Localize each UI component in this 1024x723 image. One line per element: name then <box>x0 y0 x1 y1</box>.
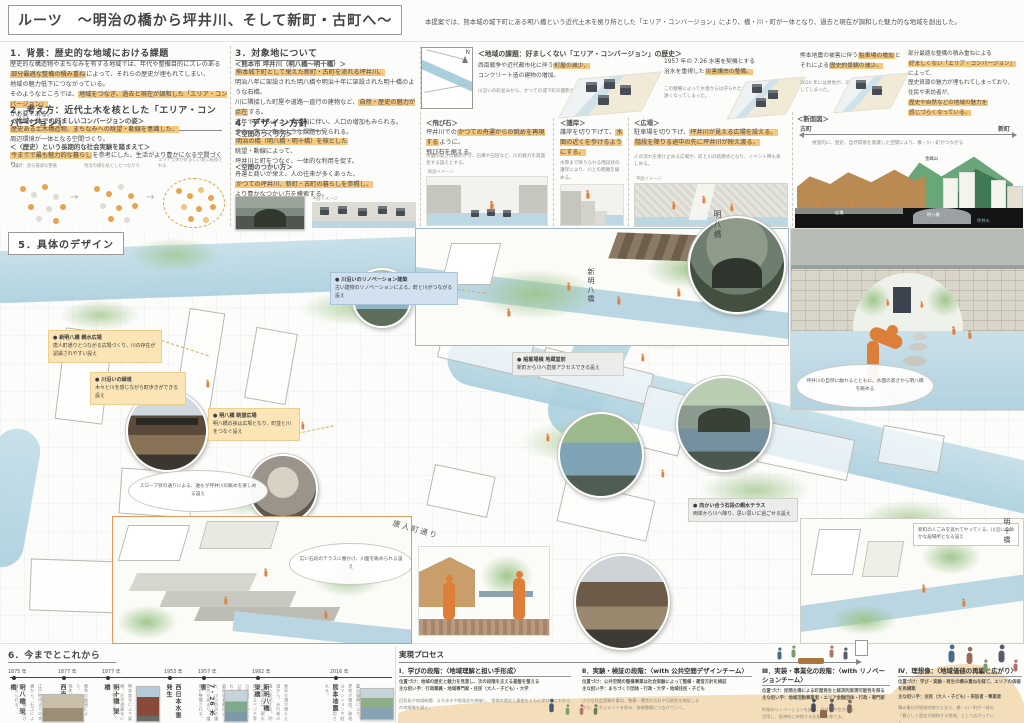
callout-renovation-architecture: ● 川沿いのリノベーション建築 古い建物のリノベーションによる、町と川がつながる… <box>330 272 458 305</box>
process-heading: 実現プロセス <box>399 649 444 660</box>
tobiishi-section-diagram <box>426 176 548 226</box>
person-silhouette <box>850 200 853 207</box>
photo-river-person <box>558 412 644 498</box>
bridge-arch-shape <box>698 408 750 432</box>
road-line <box>424 84 468 93</box>
stage-position: 位置づけ：地域の歴史と魅力を見直し、次の段階を支える基盤を整える <box>399 679 571 686</box>
gogan-section-diagram <box>560 184 624 226</box>
section-image-label: 平面イメージ <box>636 176 662 182</box>
building-block <box>856 80 866 89</box>
stage-title: Ⅱ．実験・検証の段階：〈with 公共空間デザインチーム〉 <box>582 666 752 677</box>
callout-title: ● 向かい合う石段の親水テラス <box>693 502 793 510</box>
extent-arrow <box>800 134 1016 135</box>
text: と <box>895 53 901 59</box>
concept-area-ellipse <box>163 178 225 228</box>
callout-riverside-greenway: ● 川沿いの緑道 木々と川を感じながら町歩きができる設え <box>90 372 186 405</box>
text: ように、 <box>439 139 464 146</box>
timeline-dot <box>12 676 16 680</box>
text: そのようなところでは、 <box>10 91 78 98</box>
person-silhouette <box>593 704 598 715</box>
person-silhouette <box>677 288 681 296</box>
text: 駐車場を切り下げ、 <box>634 129 689 136</box>
water <box>605 215 623 225</box>
person-silhouette <box>947 645 955 663</box>
text: 地域の魅力低下につながっている。 <box>10 81 109 88</box>
building <box>811 529 861 575</box>
cross-section-drawing: 広場 明八橋 坪井川 金峰山 <box>795 150 1023 228</box>
machiya-roof-shape <box>136 418 198 425</box>
photo-stone-bridge-pond <box>676 376 772 472</box>
historic-town-photo <box>42 694 84 722</box>
stepping-stone <box>471 210 479 217</box>
section5-heading: 5．具体のデザイン <box>8 232 124 255</box>
person-silhouette <box>641 354 645 362</box>
iso-base <box>833 73 909 114</box>
issue3-diagram <box>838 64 904 114</box>
building-block <box>338 206 347 214</box>
road-line <box>426 49 463 59</box>
divider <box>628 118 629 226</box>
person-silhouette-large <box>511 571 527 621</box>
issues-summary: 部分最適な整備の積み重ねによる 好ましくない「エリア・コンバージョン」 によって… <box>908 50 1020 118</box>
person-silhouette <box>672 202 676 210</box>
arrowhead-left <box>799 132 804 138</box>
person-silhouette <box>579 704 584 715</box>
timeline-dot <box>106 676 110 680</box>
building <box>862 541 904 577</box>
timeline-axis <box>10 677 392 678</box>
river-line <box>421 58 473 95</box>
text: 治水を重視した <box>664 69 705 75</box>
label-plaza: 広場 <box>835 210 843 216</box>
arrow-icon: → <box>70 192 78 203</box>
workshop-meeting-group <box>758 638 868 666</box>
callout-meihachi-viewpoint-plaza: ● 明八橋 眺望広場 明八橋の袂は広場となり、町並と川をつなぐ設え <box>208 408 300 441</box>
person-silhouette <box>829 646 835 658</box>
person-silhouette <box>507 308 511 316</box>
highlight-text: かつての坪井川、新町・古町の暮らしを参照し、 <box>235 181 373 188</box>
stage-actors: 主な担い手：まちづくり団体・行政・大学・地域住民・子ども <box>582 686 752 693</box>
person-silhouette <box>843 648 849 660</box>
building <box>959 172 975 212</box>
slope-axon-inset: 広い石段のテラスに腰かけ、川面を眺められる設え <box>112 516 412 644</box>
stage-position: 位置づけ：公共空間の整備事業は社会実験によって整備・運営方針を検証 <box>582 679 752 686</box>
timeline-event: 西日本水害 発生 <box>164 684 182 722</box>
person-silhouette <box>546 434 550 442</box>
callout-body: 両岸から川へ降り、思い思いに過ごせる設え <box>693 511 791 517</box>
compass-icon: N <box>466 49 471 56</box>
diagram-caption: エリア全体が好ましい姿に転換される <box>158 158 226 171</box>
axon-caption: 広い石段のテラスに腰かけ、川面を眺められる設え <box>289 543 412 585</box>
person-body <box>443 582 455 620</box>
highlight-text: 好ましくない「エリア・コンバージョン」 <box>908 61 1016 67</box>
meihachi-bridge-photo <box>235 196 305 230</box>
person-silhouette <box>816 200 819 207</box>
divider <box>230 46 231 226</box>
callout-body: 唐人町通りとつながる広場づくり、川の存在が認識されやすい設え <box>53 343 155 357</box>
bridge-arch-shape <box>254 209 286 227</box>
building-block <box>396 208 405 216</box>
hiroba-plan-diagram <box>634 183 788 227</box>
stage-body: 回覧板や地域新聞、まち歩きや勉強会を開催し、地域の歴史と資産をともに学び、これか… <box>399 697 571 711</box>
issue1-diagram <box>560 66 660 118</box>
terrace-step <box>159 591 296 607</box>
cross-section-note: 視覚的に、歴史、自然環境を意識した空間により、橋・川・町がつながる <box>812 140 1002 147</box>
person-silhouette <box>997 645 1005 663</box>
timeline-year: 1982 年 <box>252 668 271 675</box>
terrace-step <box>129 573 257 591</box>
distant-building <box>893 287 911 313</box>
quiet-riverside-inset: 新町の人ごみを逃れてやってくる、川沿いの静かな居場所となる設え <box>800 518 1024 644</box>
greenery <box>60 300 140 330</box>
stage-title: Ⅰ．学びの段階：〈地域理解と担い手形成〉 <box>399 666 571 677</box>
person-body <box>513 578 525 620</box>
timeline-year: 1957 年 <box>198 668 217 675</box>
present-river-photo <box>360 688 394 720</box>
policy-gogan-note: 水際まで降りられる階段状の護岸により、川との距離を縮める。 <box>560 160 622 182</box>
timeline-dot <box>256 676 260 680</box>
greenery <box>831 605 897 635</box>
text: 住民や来訪者が、 <box>908 90 953 96</box>
text: によって、 <box>908 71 935 77</box>
callout-body: 古い建物のリノベーションによる、町と川がつながる設え <box>335 285 452 299</box>
callout-shin-meihachi-plaza: ● 新明八橋 親水広場 唐人町通りとつながる広場づくり、川の存在が認識されやすい… <box>48 330 162 363</box>
stepping-stone <box>913 333 927 340</box>
section1-heading: 1．背景：歴史的な地域における課題 <box>10 46 215 61</box>
text: 明治八年に架設された明八橋や明治十年に架設された明十橋のような石橋、 <box>235 79 414 96</box>
building <box>199 521 279 549</box>
timeline-dot <box>62 676 66 680</box>
timeline-desc: 車両交通が増えた道から、歩行者の道へ変化する。明八橋周辺は、親水性のあるベンチ等… <box>270 684 290 722</box>
text: 川に隣接した町屋や道路一直行の建物など、 <box>235 99 358 106</box>
diagram-caption: 現状：部分最適な整備 <box>14 164 57 170</box>
label-shin-meihachi-bridge: 新明八橋 <box>586 268 596 304</box>
building-block <box>598 95 609 105</box>
highlight-text: 階段を降りる途中の先に坪井川が映え渡る。 <box>634 139 760 146</box>
bridge-arch-shape <box>712 258 762 288</box>
person-silhouette <box>828 699 834 713</box>
highlight-text: 歴史ある土木構造物、まちなみへの眺望・動線を意識した、 <box>10 126 179 133</box>
callout-body: 木々と川を感じながら町歩きができる設え <box>95 385 178 399</box>
highlight-text: 歴史や自然などの地域の魅力を <box>908 100 988 106</box>
building-block <box>768 90 778 99</box>
text: によって、それらの歴史が埋もれてしまい、 <box>86 71 209 78</box>
lead-paragraph: 本提案では、熊本城の城下町にある明八橋という近代土木を拠り所とした「エリア・コン… <box>425 17 1019 26</box>
person-silhouette <box>206 380 210 388</box>
person-silhouette <box>489 201 493 210</box>
callout-title: ● 明八橋 眺望広場 <box>213 412 295 420</box>
bank-step <box>561 191 581 225</box>
text: コンクリート造の建物の増加。 <box>478 73 559 79</box>
person-silhouette <box>324 610 328 618</box>
arrow-icon: → <box>146 192 154 203</box>
family-group <box>948 646 1024 686</box>
label-shinmachi: 新町 <box>998 124 1010 133</box>
building-block <box>620 85 631 95</box>
person-silhouette <box>886 299 889 306</box>
person-silhouette <box>810 699 816 713</box>
page-title: ルーツ ～明治の橋から坪井川、そして新町・古町へ～ <box>8 5 402 35</box>
bank-step <box>581 201 595 225</box>
label-river: 坪井川 <box>977 218 990 224</box>
concept-dots-before <box>20 186 26 192</box>
text: 眺望・動線によって、 <box>235 148 296 155</box>
person-silhouette <box>777 648 783 660</box>
bridge-deck <box>791 229 1024 269</box>
photo-machiya-street <box>574 554 670 650</box>
school-kids-group <box>548 694 618 720</box>
arrowhead-right <box>1012 132 1017 138</box>
person-silhouette <box>224 596 228 604</box>
building <box>943 178 958 212</box>
person-silhouette <box>702 196 706 204</box>
policy-tobiishi-note: 水面の高さの眺めから、石橋や石垣など、川の魅力を再発見する設えとする。 <box>426 153 546 168</box>
building-block <box>752 84 762 93</box>
callout-title: ● 川沿いの緑道 <box>95 376 181 384</box>
greenery <box>927 283 963 317</box>
divider <box>395 646 396 723</box>
greenery <box>130 238 220 272</box>
greenery <box>117 605 177 639</box>
building-block <box>358 208 367 216</box>
stage-actors: 主な担い手：行政職員・地域専門家・住民（大人・子ども）・大学 <box>399 686 571 693</box>
callout-boat-landing: ● 船着場横 地蔵堂前 新町から川へ直接アクセスできる設え <box>512 352 624 376</box>
city-block <box>29 558 123 613</box>
highlight-text: 熊本城下町として栄えた新町・古町を流れる坪井川。 <box>235 69 385 76</box>
text: 歴史的な構造物やまちなみを有する地域では、年代や整備目的にズレのある <box>10 61 220 68</box>
site-map-thumbnail: N <box>421 47 473 109</box>
person-silhouette <box>661 470 665 478</box>
person-silhouette <box>846 700 852 714</box>
label-mountain: 金峰山 <box>925 156 938 162</box>
issue2-diagram <box>700 68 796 120</box>
person-silhouette <box>565 704 570 715</box>
highlight-text: 今までで最も魅力的な暮らし <box>10 152 92 159</box>
building-block <box>604 79 615 89</box>
photo-meihachi-bridge <box>688 216 786 314</box>
label-meiju-bridge: 明十橋 <box>1002 518 1012 545</box>
stage-body: 積み重ねが地域の誇りとなり、橋・川・町が一体の「暮らしと歴史が調和する地域」とし… <box>898 704 998 723</box>
callout-title: ● 新明八橋 親水広場 <box>53 334 157 342</box>
person-silhouette <box>730 204 734 212</box>
meiju-bridge-building-photo <box>136 686 160 722</box>
highlight-text: 坪井川が見える広場を設える。 <box>689 129 777 136</box>
paved-street <box>419 619 549 635</box>
callout-stone-terrace: ● 向かい合う石段の親水テラス 両岸から川へ降り、思い思いに過ごせる設え <box>688 498 798 522</box>
north-arrow-icon <box>462 56 468 63</box>
person-silhouette <box>548 699 554 713</box>
timeline-dot <box>202 676 206 680</box>
person-silhouette <box>922 584 926 592</box>
highlight-text: 部分最適な整備の積み重ね <box>10 71 86 78</box>
person-silhouette <box>567 282 571 290</box>
concept-dots-after <box>176 188 182 194</box>
highlight-text: 明治の橋（明八橋・明十橋）を核とした <box>235 138 348 145</box>
person-silhouette <box>968 330 972 339</box>
person-silhouette <box>962 598 966 606</box>
person-silhouette <box>952 326 956 335</box>
timeline-desc: 熊本県令により架橋。近代道路化に伴い整備される。 <box>120 684 134 722</box>
person-head <box>446 575 453 582</box>
road-surface <box>795 208 903 214</box>
section6-heading: 6．今までとこれから <box>8 648 116 663</box>
callout-body: 明八橋の袂は広場となり、町並と川をつなぐ設え <box>213 421 291 435</box>
policy-hiroba-text: 駐車場を切り下げ、坪井川が見える広場を設える。 階段を降りる途中の先に坪井川が映… <box>634 128 788 148</box>
flipchart <box>855 640 868 656</box>
callout-title: ● 川沿いのリノベーション建築 <box>335 276 453 284</box>
person-silhouette <box>965 647 973 664</box>
bank <box>519 185 547 213</box>
person-silhouette <box>301 422 305 430</box>
process-stage-1: Ⅰ．学びの段階：〈地域理解と担い手形成〉 位置づけ：地域の歴史と魅力を見直し、次… <box>399 666 571 711</box>
person-silhouette <box>920 301 923 308</box>
person-head <box>516 571 523 578</box>
perspective-caption: 坪井川の自然に触れるとともに、水面の高さから明八橋を眺める <box>796 364 934 408</box>
stage-title: Ⅲ．実装・事業化の段階：〈with リノベーションチーム〉 <box>762 666 890 686</box>
divider <box>0 41 1024 42</box>
callout-title: ● 船着場横 地蔵堂前 <box>517 356 619 364</box>
text: 1957 年の 7.26 水害を契機とする <box>664 59 755 65</box>
timeline-dot <box>334 676 338 680</box>
plan-diagram <box>312 202 416 228</box>
diagram-caption: 明治の橋を核としたつながり <box>84 164 144 170</box>
visitors-group <box>806 694 876 720</box>
person-silhouette-large <box>441 575 457 621</box>
stepping-stone <box>503 210 511 217</box>
slope-caption: スロープ状の通りによる、誰もが坪井川の眺めを楽しめる設え <box>128 470 268 512</box>
timeline-year: 2016 年 <box>330 668 349 675</box>
table <box>798 658 824 664</box>
text: 歴史資源の魅力が埋もれてしまっており、 <box>908 80 1013 86</box>
street-perspective-sketch <box>418 546 550 636</box>
greenery <box>476 269 596 319</box>
person-silhouette <box>884 200 887 207</box>
divider <box>553 118 554 226</box>
policy-gogan-text: 護岸を切り下げて、水面の近くを歩けるようにする。 <box>560 128 624 158</box>
person-silhouette <box>1013 660 1019 672</box>
highlight-text: 駐車場の増加 <box>858 53 895 59</box>
concept-dots-during <box>94 186 100 192</box>
label-bridge: 明八橋 <box>927 212 940 218</box>
building <box>118 525 190 561</box>
building-block <box>756 98 766 107</box>
section-image-label: 断面イメージ <box>428 169 454 175</box>
policy-hiroba-note: 人の流れを受け止める広場が、町と川の結節点となり、イベント時も楽しめる。 <box>634 154 784 169</box>
stage-actors: 主な担い手：住民（大人・子ども）・来訪者・事業者 <box>898 694 1022 701</box>
timeline-year: 1875 年 <box>8 668 27 675</box>
text: する。 <box>248 109 267 116</box>
river-strip <box>312 221 416 228</box>
text: それによる <box>800 63 829 69</box>
iso-base <box>726 76 805 119</box>
highlight-text: 感じづらくなっている。 <box>908 110 971 116</box>
suitcase <box>820 710 827 718</box>
stone-bridge-shape <box>913 208 971 224</box>
text: 部分最適な整備の積み重ねによる <box>908 51 992 57</box>
bank <box>427 185 461 213</box>
stepping-stone <box>909 343 927 351</box>
person-silhouette <box>617 296 621 304</box>
divider <box>792 112 793 226</box>
building-block <box>872 86 882 95</box>
presentation-board: ルーツ ～明治の橋から坪井川、そして新町・古町へ～ 本提案では、熊本城の城下町に… <box>0 0 1024 723</box>
person-silhouette <box>264 568 268 576</box>
building-block <box>586 82 597 92</box>
text: 坪井川での <box>426 129 457 136</box>
river-park-photo <box>224 690 248 722</box>
timeline-year: 1877 年 <box>58 668 77 675</box>
timeline-year: 1877 年 <box>102 668 121 675</box>
issues-heading: ＜地域の課題：好ましくない「エリア・コンバージョン」の歴史＞ <box>478 48 682 58</box>
text: 護岸を切り下げて、 <box>560 129 615 136</box>
building-block <box>320 207 329 215</box>
person-silhouette <box>983 660 989 672</box>
callout-body: 新町から川へ直接アクセスできる設え <box>517 365 600 371</box>
person-silhouette <box>586 190 590 199</box>
building-block <box>378 206 387 214</box>
person-silhouette <box>791 646 797 658</box>
text: 舟運と商いが栄え、人の往来が多くあった、 <box>235 171 359 178</box>
timeline-dot <box>168 676 172 680</box>
timeline-year: 1953 年 <box>164 668 183 675</box>
label-meihachi-bridge: 明八橋 <box>712 210 723 240</box>
text: 西南戦争や近代都市化に伴う <box>478 63 553 69</box>
text: 熊本地震の被害に伴う <box>800 53 858 59</box>
